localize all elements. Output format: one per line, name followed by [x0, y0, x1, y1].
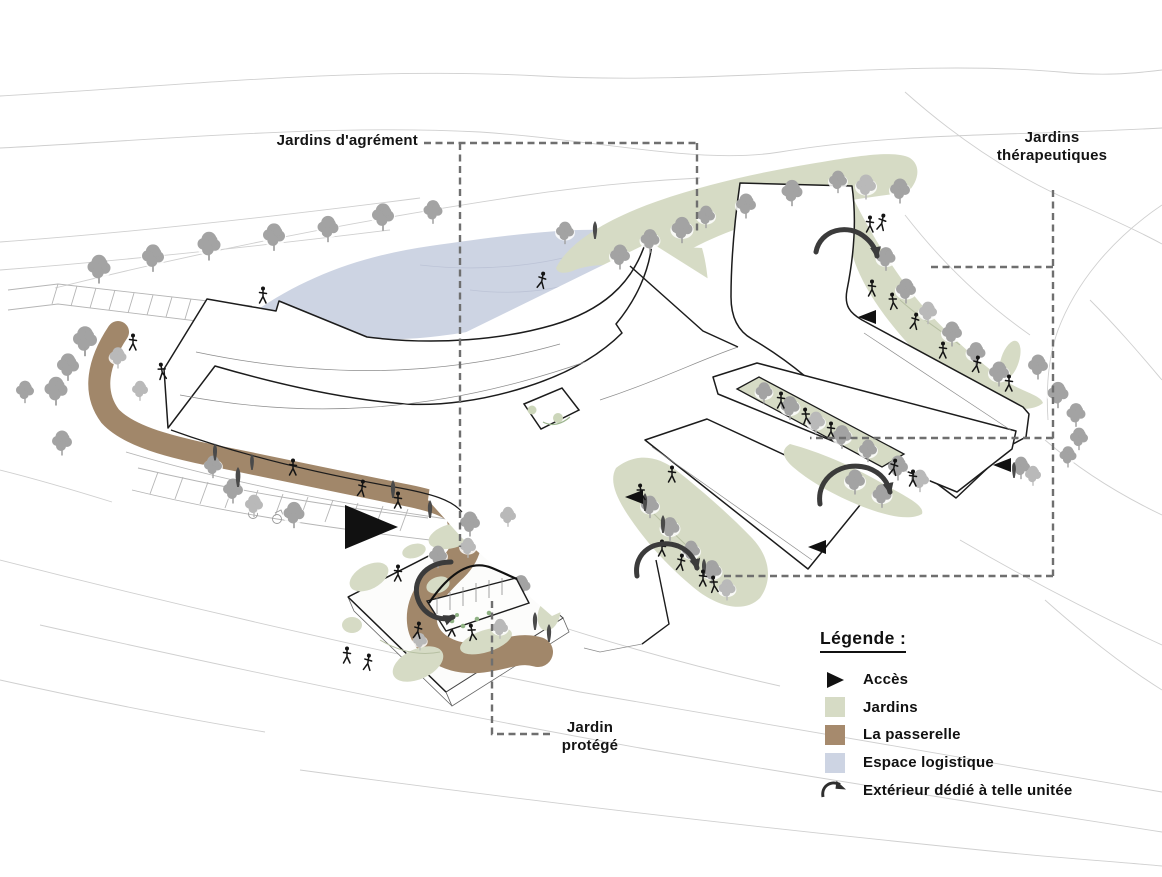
label-line: Jardin — [528, 719, 652, 737]
logistics-color-swatch — [825, 753, 845, 773]
legend-item-label: Espace logistique — [863, 754, 994, 771]
legend-item-label: Extérieur dédié à telle unitée — [863, 782, 1072, 799]
site-plan-page: Jardins d'agrément Jardins thérapeutique… — [0, 0, 1162, 877]
legend-title: Légende : — [820, 628, 906, 653]
legend-item-label: Jardins — [863, 699, 918, 716]
label-jardins-therapeutiques: Jardins thérapeutiques — [972, 129, 1132, 164]
legend-item-jardins: Jardins — [820, 694, 1155, 722]
access-triangle-icon — [820, 671, 850, 689]
legend-item-acces: Accès — [820, 666, 1155, 694]
legend-item-passerelle: La passerelle — [820, 721, 1155, 749]
label-jardins-agrement: Jardins d'agrément — [238, 132, 418, 150]
main-access-triangle-icon — [345, 505, 398, 549]
legend-item-label: Accès — [863, 671, 908, 688]
legend: Légende : Accès Jardins La passerelle Es… — [820, 628, 1155, 804]
label-line: Jardins — [972, 129, 1132, 147]
label-jardin-protege: Jardin protégé — [528, 719, 652, 754]
dedicated-exterior-arrow-icon — [820, 778, 850, 802]
legend-item-exterieur-dedie: Extérieur dédié à telle unitée — [820, 776, 1155, 804]
walkway-color-swatch — [825, 725, 845, 745]
label-line: thérapeutiques — [972, 147, 1132, 165]
legend-item-label: La passerelle — [863, 726, 961, 743]
garden-color-swatch — [825, 697, 845, 717]
legend-item-espace-logistique: Espace logistique — [820, 749, 1155, 777]
label-line: protégé — [528, 737, 652, 755]
